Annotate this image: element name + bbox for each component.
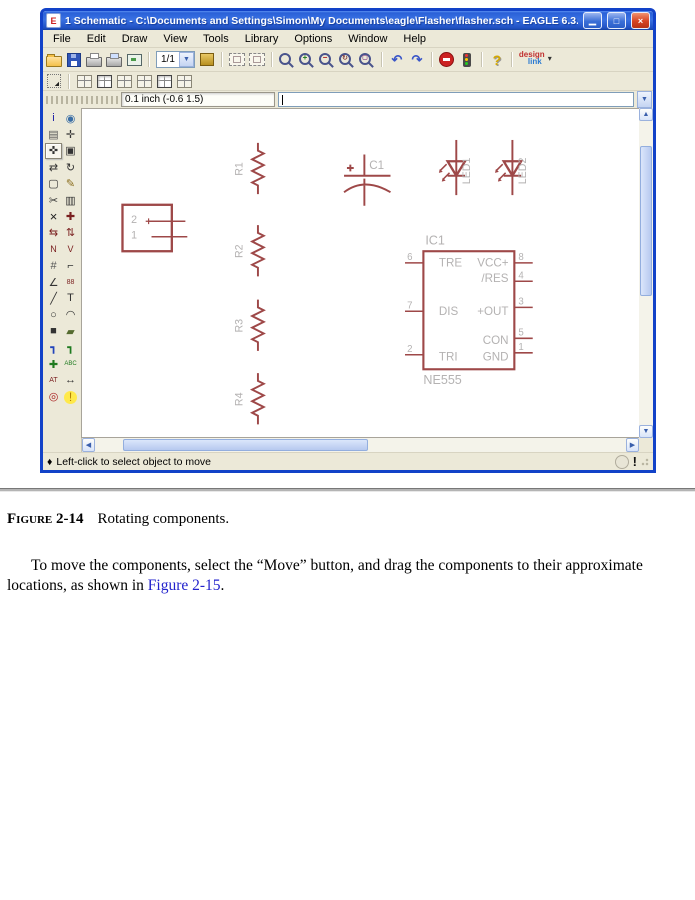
toolbar-separator: [481, 52, 483, 67]
zoom-redraw-icon: ↻: [339, 53, 351, 65]
tool-rect-button[interactable]: ■: [45, 323, 62, 339]
zoom-in-icon: +: [299, 53, 311, 65]
tool-smash-button[interactable]: #: [45, 258, 62, 274]
scrollbar-corner-right: [639, 438, 653, 452]
tool-circle-button[interactable]: ○: [45, 307, 62, 323]
connector-pin1-label: 1: [131, 230, 137, 242]
schematic-drawing: 2 1 R1 R2 R3 R4 C1 LED1 LED2 IC1 NE555 6…: [82, 109, 639, 437]
toolbar-separator: [381, 52, 383, 67]
resistor-r3[interactable]: [252, 300, 264, 351]
tool-dimension-button[interactable]: ↔: [62, 372, 79, 388]
ic1-component[interactable]: [405, 251, 533, 369]
save-floppy-icon: [67, 53, 81, 67]
horizontal-scroll-track[interactable]: [95, 438, 626, 452]
tool-palette: i◉▤✛✜▣⇄↻▢✎✂▥×✚⇆⇅NV#⌐∠88╱T○◠■▰┓┓✚ABCAT↔◎!: [43, 108, 81, 438]
minimize-button[interactable]: ▁: [583, 12, 602, 29]
resistor-r1[interactable]: [252, 143, 264, 194]
stop-icon: [439, 52, 454, 67]
pin-label: TRE: [439, 257, 462, 270]
led-arrowheads: [439, 169, 446, 182]
open-folder-icon: [46, 56, 62, 67]
layout-icon: [137, 75, 152, 88]
resistor-symbol: [252, 225, 264, 276]
title-bar[interactable]: E 1 Schematic - C:\Documents and Setting…: [43, 11, 653, 30]
zoom-out-icon: −: [319, 53, 331, 65]
menu-tools[interactable]: Tools: [195, 33, 237, 45]
use-library-icon: [200, 53, 214, 66]
print-button[interactable]: [86, 51, 102, 69]
pin-label: /RES: [481, 272, 508, 285]
status-bar: ♦ Left-click to select object to move !: [43, 452, 653, 470]
resize-grip[interactable]: [641, 458, 649, 466]
tool-group-button[interactable]: ▢: [45, 176, 62, 192]
paragraph-text-end: .: [221, 577, 225, 594]
sheet-select[interactable]: 1/1 ▼: [156, 51, 195, 68]
frame-icon: [229, 53, 245, 66]
tool-bus-button[interactable]: ┓: [45, 339, 62, 355]
tool-mirror-button[interactable]: ⇄: [45, 159, 62, 175]
use-library-button[interactable]: [199, 51, 215, 69]
grid-icon: [47, 74, 61, 88]
tool-copy-button[interactable]: ▣: [62, 143, 79, 159]
maximize-button[interactable]: □: [607, 12, 626, 29]
scroll-up-icon[interactable]: ▲: [639, 108, 653, 121]
command-input[interactable]: [278, 92, 634, 107]
vertical-scrollbar[interactable]: ▲ ▼: [639, 108, 653, 438]
layout-button-2[interactable]: [96, 72, 112, 90]
led1-label: LED1: [461, 158, 473, 185]
tool-net-button[interactable]: ┓: [62, 339, 79, 355]
status-indicator-icon: [615, 455, 629, 469]
toolbar-separator: [68, 74, 70, 89]
paragraph-text: To move the components, select the “Move…: [7, 557, 643, 594]
tool-split-button[interactable]: ∠: [45, 274, 62, 290]
layout-icon: [77, 75, 92, 88]
pin-label: +OUT: [477, 305, 508, 318]
layout-icon: [97, 75, 112, 88]
toolbar-drag-handle[interactable]: [46, 96, 118, 104]
pin-label: CON: [483, 334, 509, 347]
sheet-select-value: 1/1: [161, 54, 175, 65]
undo-button[interactable]: ↶: [389, 51, 405, 69]
pin-number: 5: [518, 327, 523, 338]
zoom-redraw-button[interactable]: ↻: [339, 51, 355, 69]
tool-cut-button[interactable]: ✂: [45, 192, 62, 208]
menu-library[interactable]: Library: [237, 33, 287, 45]
sheet-frame-button-1[interactable]: [229, 51, 245, 69]
pin-label: TRI: [439, 351, 458, 364]
frame-icon: [249, 53, 265, 66]
pin-number: 3: [518, 296, 523, 307]
ic1-value-label: NE555: [423, 373, 461, 387]
pin-cross-icon: [146, 218, 152, 224]
tool-delete-button[interactable]: ×: [45, 208, 62, 224]
resistor-symbol: [252, 300, 264, 351]
scroll-right-icon[interactable]: ▶: [626, 438, 639, 452]
status-text: Left-click to select object to move: [56, 456, 211, 468]
plus-polarity-icon: [347, 165, 354, 172]
toolbar-view: [43, 72, 653, 91]
cam-icon: [106, 57, 122, 67]
zoom-out-button[interactable]: −: [319, 51, 335, 69]
figure-caption: Figure 2-14Rotating components.: [7, 511, 229, 528]
zoom-select-button[interactable]: ▢: [359, 51, 375, 69]
menu-window[interactable]: Window: [340, 33, 395, 45]
go-button[interactable]: [459, 51, 475, 69]
r4-label: R4: [233, 392, 245, 406]
toolbar-separator: [511, 52, 513, 67]
tool-arc-button[interactable]: ◠: [62, 307, 79, 323]
open-button[interactable]: [46, 51, 62, 69]
connector-body: [122, 205, 171, 251]
pin-number: 8: [518, 252, 523, 263]
status-bullet-icon: ♦: [47, 456, 52, 468]
errors-indicator-icon[interactable]: !: [633, 454, 637, 469]
menu-bar: FileEditDrawViewToolsLibraryOptionsWindo…: [43, 30, 653, 48]
resistor-symbol: [252, 373, 264, 424]
menu-view[interactable]: View: [155, 33, 195, 45]
figure-caption-text: Rotating components.: [97, 511, 229, 527]
layout-icon: [117, 75, 132, 88]
traffic-light-icon: [463, 53, 471, 67]
tool-display-button[interactable]: ▤: [45, 126, 62, 142]
pin-number: 2: [407, 344, 412, 355]
tool-change-button[interactable]: ✎: [62, 176, 79, 192]
tool-erc-button[interactable]: ◎: [45, 389, 62, 405]
pin-number: 4: [518, 270, 524, 281]
tool-junction-button[interactable]: ✚: [45, 356, 62, 372]
tool-show-button[interactable]: ◉: [62, 110, 79, 126]
ic1-name-label: IC1: [425, 233, 445, 247]
tool-errors-button[interactable]: !: [64, 391, 77, 404]
zoom-select-icon: ▢: [359, 53, 371, 65]
close-button[interactable]: ×: [631, 12, 650, 29]
window-title: 1 Schematic - C:\Documents and Settings\…: [65, 15, 578, 27]
resistor-symbol: [252, 143, 264, 194]
led-arrowheads: [495, 169, 502, 182]
app-icon: E: [46, 13, 61, 28]
tool-add-button[interactable]: ✚: [62, 208, 79, 224]
layout-button-4[interactable]: [136, 72, 152, 90]
toolbar-separator: [431, 52, 433, 67]
connector-pins: [149, 221, 188, 236]
pin-number: 7: [407, 300, 412, 311]
toolbar-separator: [148, 52, 150, 67]
scroll-left-icon[interactable]: ◀: [82, 438, 95, 452]
tool-gateswap-button[interactable]: ⇅: [62, 225, 79, 241]
layout-button-3[interactable]: [116, 72, 132, 90]
tool-attribute-button[interactable]: AT: [45, 372, 62, 388]
menu-options[interactable]: Options: [286, 33, 340, 45]
menu-file[interactable]: File: [45, 33, 79, 45]
command-bar: 0.1 inch (-0.6 1.5) ▼: [43, 91, 653, 108]
pin-number: 6: [407, 252, 412, 263]
led2-label: LED2: [517, 158, 529, 185]
tool-paste-button[interactable]: ▥: [62, 192, 79, 208]
text-caret: [282, 95, 283, 105]
tool-move-button[interactable]: ✜: [45, 143, 62, 159]
figure-divider-rule: [0, 488, 695, 492]
book-page: { "window": { "title": "1 Schematic - C:…: [0, 0, 695, 900]
r1-label: R1: [233, 162, 245, 176]
tool-mark-button[interactable]: ✛: [62, 126, 79, 142]
pin-label: DIS: [439, 305, 459, 318]
pin-label: GND: [483, 351, 509, 364]
scroll-down-icon[interactable]: ▼: [639, 425, 653, 438]
layout-button-5[interactable]: [156, 72, 172, 90]
tool-invoke-button[interactable]: 88: [62, 274, 79, 290]
coordinate-display: 0.1 inch (-0.6 1.5): [121, 92, 275, 107]
designlink-dropdown[interactable]: design link ▾: [519, 51, 552, 69]
horizontal-scroll-thumb[interactable]: [123, 439, 368, 451]
vertical-scroll-track[interactable]: [639, 121, 653, 425]
tool-value-button[interactable]: V: [62, 241, 79, 257]
zoom-fit-icon: [279, 53, 291, 65]
toolbar-separator: [221, 52, 223, 67]
layout-button-1[interactable]: [76, 72, 92, 90]
figure-2-15-link[interactable]: Figure 2-15: [148, 577, 221, 594]
schematic-canvas[interactable]: 2 1 R1 R2 R3 R4 C1 LED1 LED2 IC1 NE555 6…: [81, 108, 639, 438]
command-history-dropdown[interactable]: ▼: [637, 91, 652, 108]
vertical-scroll-thumb[interactable]: [640, 146, 652, 296]
tool-text-button[interactable]: T: [62, 290, 79, 306]
tool-rotate-button[interactable]: ↻: [62, 159, 79, 175]
tool-miter-button[interactable]: ⌐: [62, 258, 79, 274]
chevron-down-icon: ▾: [548, 54, 552, 63]
connector-component[interactable]: [122, 205, 187, 251]
layout-icon: [177, 75, 192, 88]
designlink-logo: design link: [519, 51, 545, 65]
redo-button[interactable]: ↷: [409, 51, 425, 69]
c1-label: C1: [369, 159, 384, 172]
tool-pinswap-button[interactable]: ⇆: [45, 225, 62, 241]
tool-polygon-button[interactable]: ▰: [62, 323, 79, 339]
zoom-in-button[interactable]: +: [299, 51, 315, 69]
body-paragraph: To move the components, select the “Move…: [7, 556, 691, 596]
eagle-window: E 1 Schematic - C:\Documents and Setting…: [40, 8, 656, 473]
tool-info-button[interactable]: i: [45, 110, 62, 126]
figure-caption-label: Figure 2-14: [7, 511, 83, 527]
save-button[interactable]: [66, 51, 82, 69]
stop-button[interactable]: [439, 51, 455, 69]
connector-pin2-label: 2: [131, 214, 137, 226]
tool-name-button[interactable]: N: [45, 241, 62, 257]
r3-label: R3: [233, 319, 245, 333]
layout-icon: [157, 75, 172, 88]
help-button[interactable]: ?: [489, 51, 505, 69]
horizontal-scrollbar[interactable]: ◀ ▶: [82, 438, 639, 452]
toolbar-main: 1/1 ▼ + − ↻ ▢ ↶ ↷ ? design link ▾: [43, 48, 653, 72]
chevron-down-icon[interactable]: ▼: [179, 52, 194, 67]
zoom-fit-button[interactable]: [279, 51, 295, 69]
pin-label: VCC+: [477, 257, 509, 270]
grid-button[interactable]: [46, 72, 62, 90]
tool-wire-button[interactable]: ╱: [45, 290, 62, 306]
menu-help[interactable]: Help: [395, 33, 434, 45]
toolbar-separator: [271, 52, 273, 67]
switch-to-board-button[interactable]: [126, 51, 142, 69]
cam-processor-button[interactable]: [106, 51, 122, 69]
resistor-r4[interactable]: [252, 373, 264, 424]
menu-edit[interactable]: Edit: [79, 33, 114, 45]
layout-button-6[interactable]: [176, 72, 192, 90]
r2-label: R2: [233, 244, 245, 258]
resistor-r2[interactable]: [252, 225, 264, 276]
tool-label-button[interactable]: ABC: [62, 356, 79, 372]
scrollbar-corner-left: [43, 438, 82, 452]
printer-icon: [86, 57, 102, 67]
sheet-frame-button-2[interactable]: [249, 51, 265, 69]
pin-number: 1: [518, 342, 523, 353]
menu-draw[interactable]: Draw: [114, 33, 156, 45]
board-icon: [127, 54, 142, 66]
